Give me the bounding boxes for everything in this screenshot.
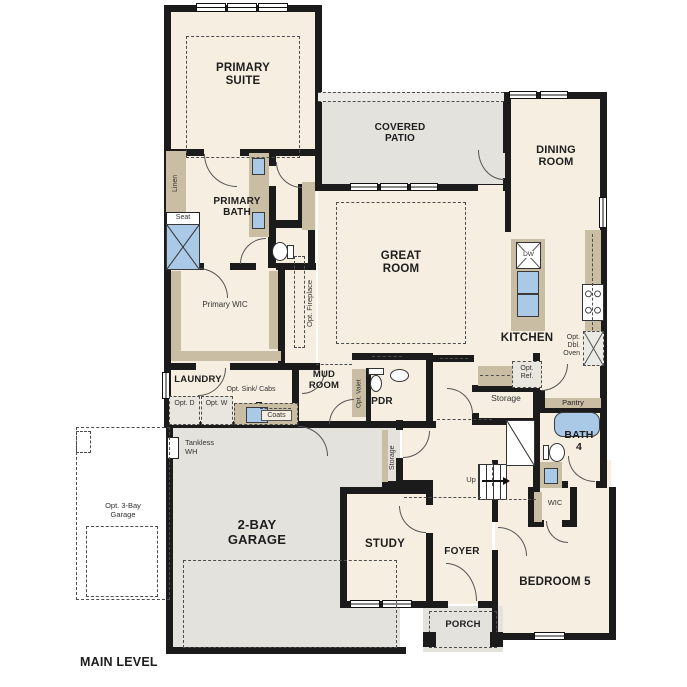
- wic-shelf: [269, 271, 278, 349]
- bath4-sink: [544, 468, 558, 484]
- seat-label: Seat: [167, 214, 199, 222]
- wall: [503, 95, 507, 153]
- dw-label: DW: [517, 251, 540, 258]
- floor-plan: Seat DW: [0, 0, 687, 687]
- wall: [426, 487, 433, 505]
- wall: [164, 363, 196, 370]
- toilet-tank: [287, 245, 294, 259]
- coats-dash: [260, 408, 291, 409]
- opt-double-oven-box: [583, 331, 604, 366]
- opening-dash: [440, 358, 468, 359]
- stair-landing: [506, 420, 535, 466]
- bedroom5-label: BEDROOM 5: [508, 576, 602, 589]
- laundry-label: LAUNDRY: [167, 375, 229, 386]
- opt-d-label: Opt. D: [172, 400, 197, 408]
- cooktop: [582, 284, 604, 321]
- door-gap: [478, 185, 503, 191]
- window: [196, 3, 226, 12]
- wall: [230, 263, 256, 270]
- opening-dash: [316, 364, 352, 365]
- porch-label: PORCH: [436, 620, 490, 631]
- wall: [166, 647, 406, 654]
- opt-ref-label: Opt. Ref.: [514, 365, 540, 381]
- primary-bath-label: PRIMARY BATH: [205, 196, 269, 218]
- bath-cabinet: [302, 182, 315, 230]
- wall: [340, 487, 433, 494]
- opt-valet-label: Opt. Valet: [353, 372, 365, 416]
- garage-door-outline: [183, 560, 397, 648]
- wall: [426, 533, 433, 608]
- primary-suite-label: PRIMARY SUITE: [198, 62, 288, 88]
- porch-post: [423, 632, 436, 647]
- opt-dbl-oven-label: Opt. Dbl. Oven: [554, 334, 580, 358]
- toilet: [370, 375, 382, 392]
- opt-fireplace-label: Opt. Fireplace: [304, 258, 317, 348]
- pdr-sink: [390, 369, 409, 382]
- primary-wic-label: Primary WIC: [200, 300, 250, 309]
- window: [350, 183, 378, 191]
- storage-closet-label: Storage: [387, 437, 399, 479]
- pantry-label: Pantry: [548, 399, 598, 408]
- coats-label: Coats: [261, 410, 292, 421]
- tankless-wh-label: Tankless WH: [183, 439, 225, 456]
- counter-dash: [592, 234, 593, 330]
- foyer-label: FOYER: [438, 546, 486, 557]
- opening-dash: [372, 356, 402, 357]
- toilet-tank: [368, 368, 384, 375]
- storage-room-label: Storage: [476, 394, 536, 404]
- wall: [426, 601, 448, 608]
- wic-label: WIC: [540, 499, 570, 508]
- stairs-arrow: [482, 480, 504, 482]
- kitchen-counter: [478, 366, 513, 386]
- wall: [472, 385, 479, 392]
- window: [509, 91, 537, 99]
- window: [410, 183, 438, 191]
- opt-w-label: Opt. W: [204, 400, 229, 408]
- opening-dash: [492, 462, 493, 486]
- dishwasher: DW: [516, 242, 541, 269]
- dining-room-label: DINING ROOM: [524, 144, 588, 169]
- kitchen-sink: [517, 271, 539, 317]
- opt-3bay-inner: [86, 526, 158, 597]
- stairs-arrow-head: [503, 477, 510, 485]
- opt-sink-cabs-label: Opt. Sink/ Cabs: [226, 386, 276, 394]
- study-label: STUDY: [352, 538, 418, 551]
- wall: [230, 363, 290, 370]
- wic-shelf: [171, 351, 281, 361]
- wall: [426, 353, 433, 426]
- counter-dash: [480, 375, 510, 376]
- bath-sink: [252, 158, 265, 175]
- opt-3bay-label: Opt. 3-Bay Garage: [94, 502, 152, 519]
- wall: [609, 487, 616, 640]
- pdr-label: PDR: [362, 396, 402, 407]
- kitchen-label: KITCHEN: [490, 332, 564, 345]
- main-level-title: MAIN LEVEL: [80, 655, 200, 669]
- up-label: Up: [462, 476, 480, 485]
- window: [258, 3, 288, 12]
- garage-label: 2-BAY GARAGE: [220, 518, 294, 547]
- patio-edge: [318, 92, 504, 102]
- toilet: [272, 242, 288, 261]
- porch-post: [490, 632, 503, 647]
- window: [380, 183, 408, 191]
- great-room-label: GREAT ROOM: [364, 250, 438, 276]
- wic-shelf: [171, 271, 181, 359]
- window: [599, 197, 607, 228]
- opening-dash: [404, 497, 481, 498]
- mud-room-label: MUD ROOM: [298, 370, 350, 391]
- opening-dash: [437, 419, 492, 420]
- covered-patio-label: COVERED PATIO: [364, 122, 436, 144]
- opt-3bay-notch: [76, 431, 91, 453]
- window: [540, 91, 568, 99]
- bath4-label: BATH 4: [560, 430, 598, 454]
- wall: [396, 420, 403, 430]
- window: [534, 632, 565, 640]
- opening-dash: [480, 499, 536, 500]
- linen-label: Linen: [168, 155, 184, 211]
- suite-tray-ceiling: [186, 36, 300, 158]
- shower: [166, 224, 200, 270]
- window: [227, 3, 257, 12]
